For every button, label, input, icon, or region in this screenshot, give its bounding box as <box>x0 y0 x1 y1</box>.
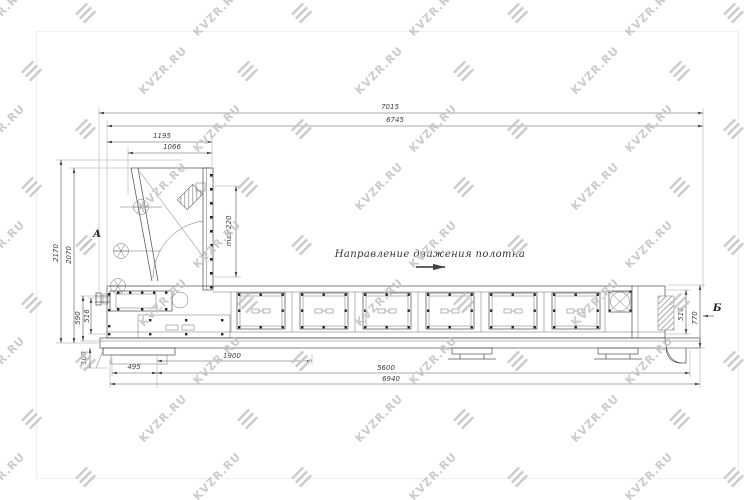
dim-label-1066: 1066 <box>163 143 181 151</box>
technical-drawing-page: 7015 6745 1195 1066 2170 2070 max 220 5 <box>0 0 750 500</box>
dim-label-495: 495 <box>127 363 141 371</box>
hopper-bolts <box>210 174 213 289</box>
dim-label-516-left: 516 <box>83 309 91 323</box>
dim-label-6940: 6940 <box>382 375 400 383</box>
base-frame <box>96 338 700 368</box>
machine-schematic: 7015 6745 1195 1066 2170 2070 max 220 5 <box>0 0 750 500</box>
dim-label-100: 100 <box>80 351 88 365</box>
section-b-text: Б <box>712 303 722 314</box>
dimension-6940: 6940 <box>110 375 700 384</box>
drive-unit <box>95 291 230 338</box>
dim-label-5600: 5600 <box>377 364 395 372</box>
dimension-5600: 5600 <box>157 364 690 373</box>
hopper-motor <box>177 184 202 209</box>
dim-label-max220: max 220 <box>225 215 233 246</box>
dimension-516-left: 516 <box>83 298 91 334</box>
dim-label-2070: 2070 <box>65 246 73 264</box>
section-label-b: Б <box>703 303 722 316</box>
dim-label-1195: 1195 <box>153 132 171 140</box>
dimension-770: 770 <box>691 285 700 348</box>
direction-annotation: Направление движения полотна <box>334 249 526 267</box>
direction-label: Направление движения полотна <box>334 249 526 260</box>
section-label-a: А <box>83 229 101 247</box>
dim-label-2170: 2170 <box>52 244 60 262</box>
extension-lines <box>56 108 705 388</box>
end-section <box>632 286 681 363</box>
feeder-hopper <box>110 168 213 294</box>
dimension-516-right: 516 <box>677 290 686 334</box>
fan-unit <box>609 291 632 313</box>
dimension-1195: 1195 <box>107 132 212 142</box>
section-a-text: А <box>92 229 101 240</box>
dimension-100: 100 <box>80 348 90 368</box>
dim-label-6745: 6745 <box>386 116 404 124</box>
dimension-7015: 7015 <box>99 103 703 113</box>
dimension-1066: 1066 <box>128 143 212 153</box>
dimension-495: 495 <box>112 363 157 373</box>
dimension-1900: 1900 <box>157 352 312 361</box>
dim-label-7015: 7015 <box>381 103 399 111</box>
dimension-6745: 6745 <box>107 116 703 126</box>
dim-label-516-right: 516 <box>677 307 685 321</box>
dim-label-1900: 1900 <box>223 352 241 360</box>
dim-label-770: 770 <box>691 311 699 325</box>
dimension-2070: 2070 <box>65 168 74 343</box>
dimension-max220: max 220 <box>225 186 236 277</box>
dimension-590: 590 <box>74 296 83 341</box>
dimension-2170: 2170 <box>52 160 61 343</box>
dim-label-590: 590 <box>74 311 82 325</box>
